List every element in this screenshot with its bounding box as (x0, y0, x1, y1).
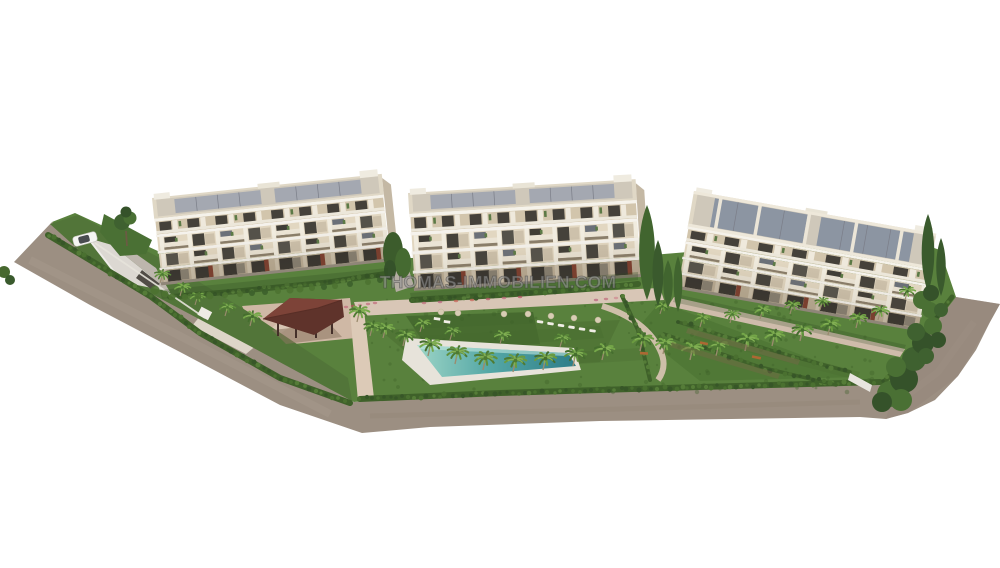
svg-text:THOMAS-IMMOBILIEN.COM: THOMAS-IMMOBILIEN.COM (380, 272, 617, 292)
